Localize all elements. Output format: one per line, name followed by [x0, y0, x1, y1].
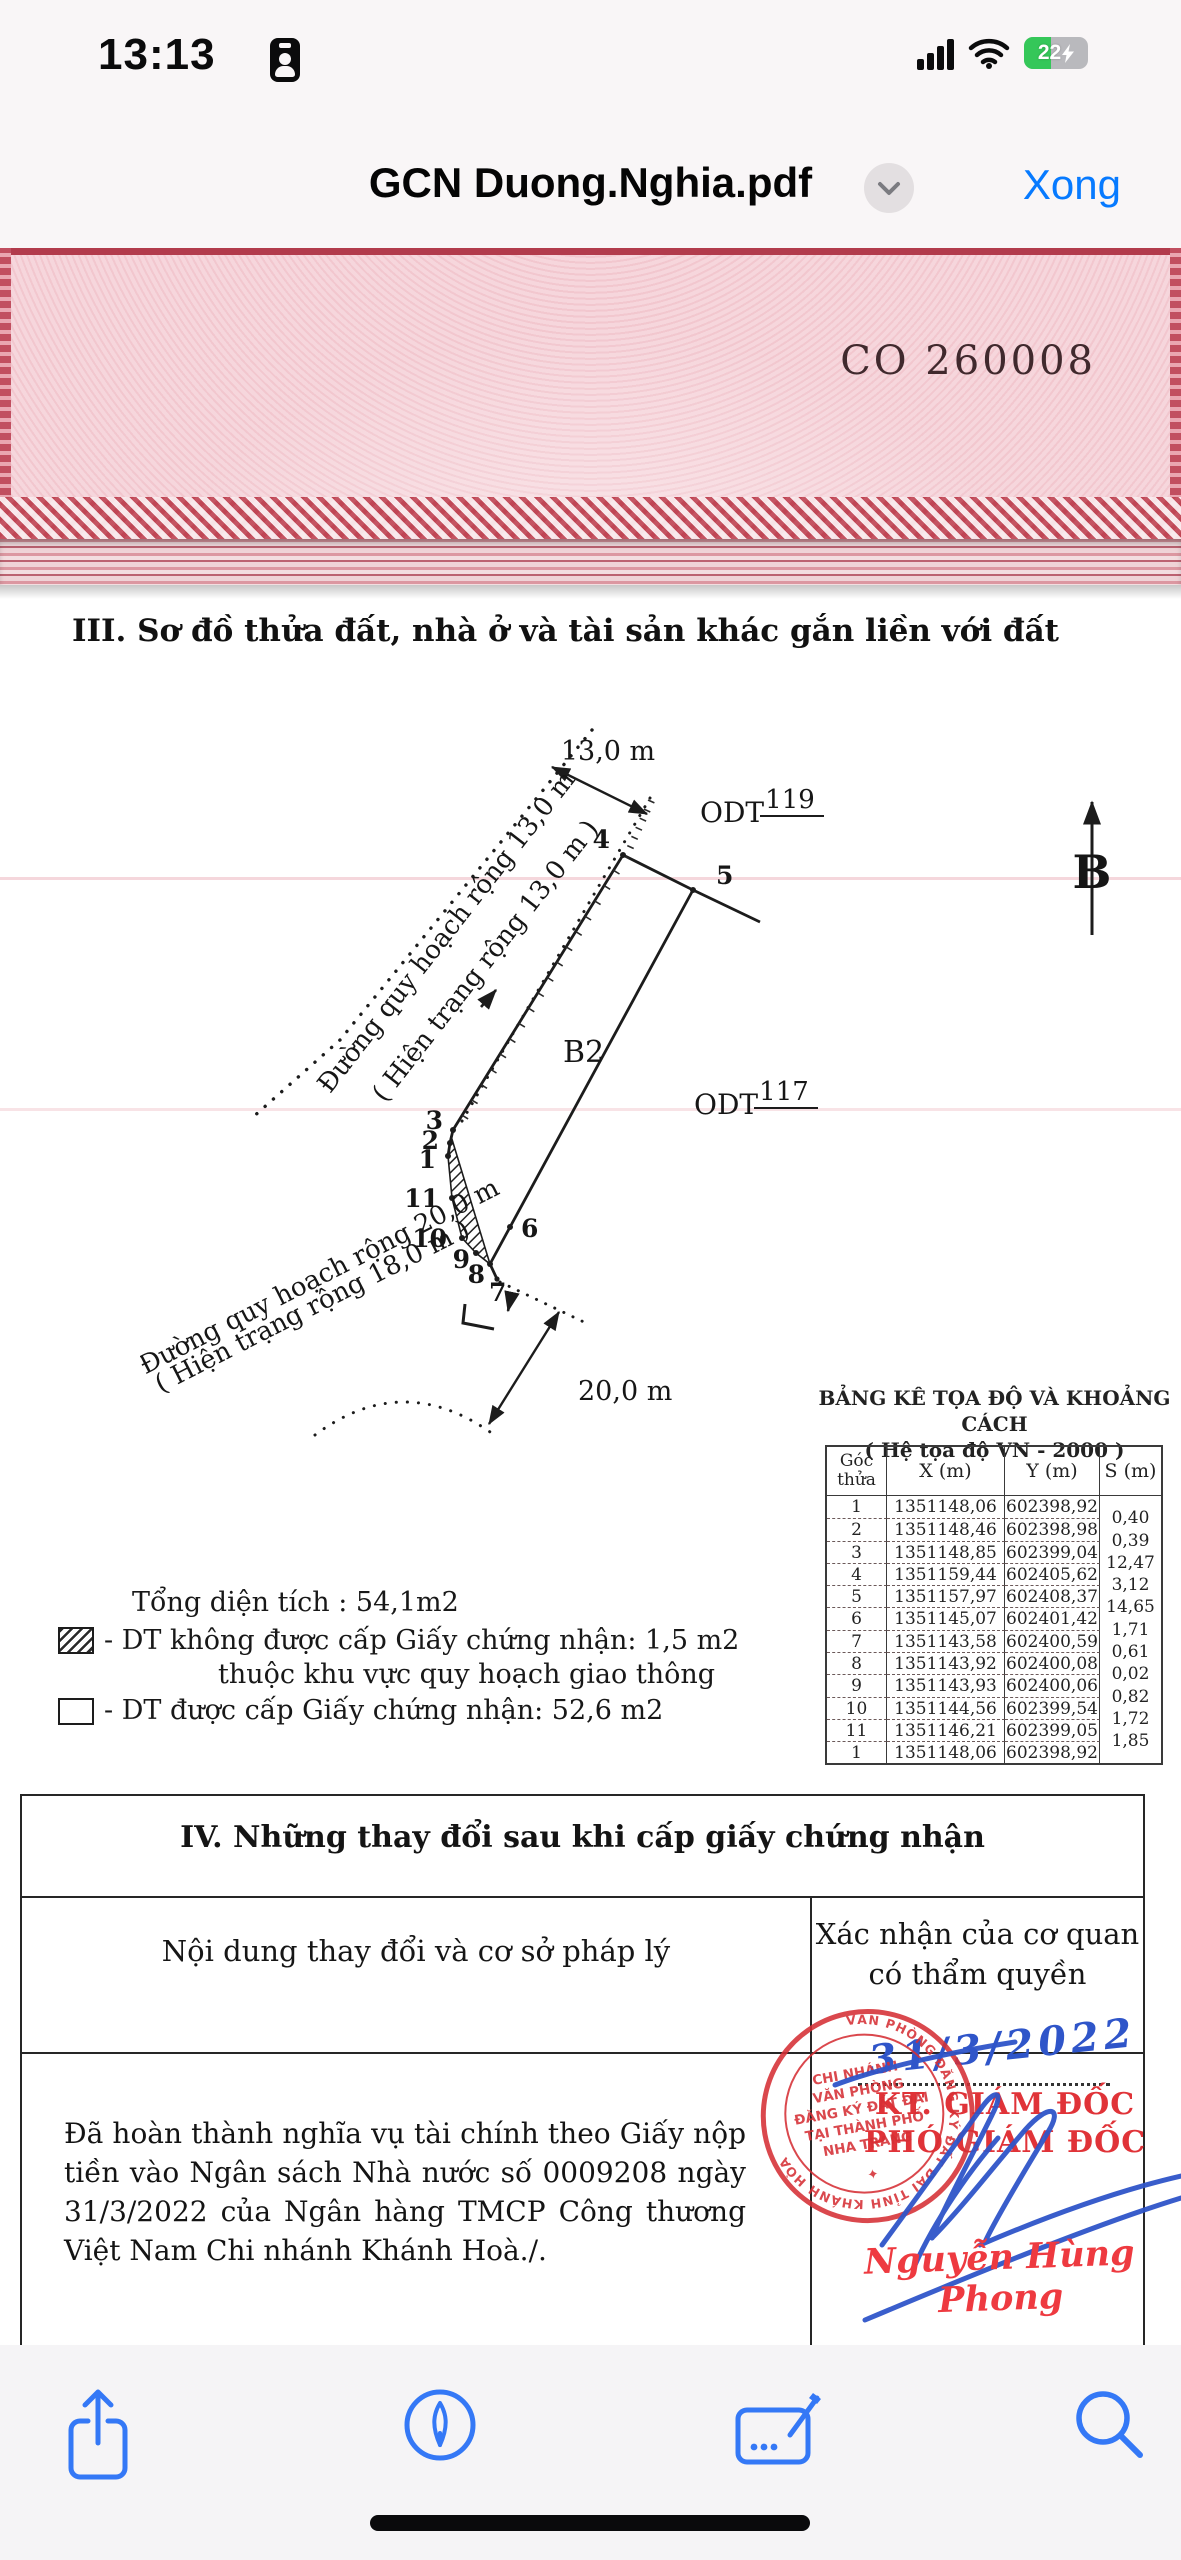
divider	[22, 1896, 1143, 1898]
odt117-label: ODT	[694, 1088, 758, 1121]
certificate-header: CO 260008	[0, 248, 1181, 585]
svg-text:6: 6	[521, 1214, 538, 1243]
battery-percent: 22	[1038, 41, 1061, 65]
search-button[interactable]	[1070, 2385, 1150, 2469]
legend-not-granted-2: thuộc khu vực quy hoạch giao thông	[218, 1659, 715, 1690]
dimension-line-20m	[489, 1312, 559, 1424]
financial-note: Đã hoàn thành nghĩa vụ tài chính theo Gi…	[64, 2114, 746, 2270]
odt117-number: 117	[759, 1077, 809, 1107]
dim-13m-label: 13,0 m	[561, 736, 655, 767]
title-menu-button[interactable]	[864, 163, 914, 213]
signer-name: Nguyễn Hùng Phong	[829, 2231, 1172, 2325]
search-icon	[1070, 2385, 1150, 2465]
tick-arrow-down	[508, 1292, 512, 1311]
pdf-page: III. Sơ đồ thửa đất, nhà ở và tài sản kh…	[0, 585, 1181, 2345]
north-label: B	[1073, 845, 1112, 899]
tick-arrow-up	[481, 990, 496, 1007]
dim-20m-label: 20,0 m	[578, 1376, 672, 1407]
svg-text:5: 5	[716, 861, 733, 890]
odt119-label: ODT	[700, 796, 764, 829]
chevron-down-icon	[864, 163, 914, 213]
share-button[interactable]	[60, 2385, 136, 2489]
road-edge-dotted	[500, 1282, 588, 1324]
screen: 13:13 22	[0, 0, 1181, 2560]
section4-col-left-header: Nội dung thay đổi và cơ sở pháp lý	[22, 1934, 810, 1968]
road-corner-mark	[463, 1304, 494, 1329]
coord-table: Góc thửa X (m) Y (m) S (m) 11351148,0660…	[825, 1445, 1163, 1765]
done-button[interactable]: Xong	[1023, 161, 1121, 209]
focus-id-badge-icon	[270, 38, 300, 82]
signature-box-icon	[730, 2385, 830, 2475]
certificate-fold-edge	[0, 539, 1181, 585]
title-bar: GCN Duong.Nghia.pdf Xong	[0, 125, 1181, 249]
coord-table-body: 11351148,06602398,9221351148,46602398,98…	[827, 1496, 1161, 1764]
road-curve-dotted	[315, 1402, 497, 1437]
markup-pen-icon	[400, 2385, 480, 2465]
clock: 13:13	[98, 30, 216, 80]
svg-text:8: 8	[468, 1260, 485, 1289]
battery-icon: 22	[1024, 37, 1081, 69]
share-icon	[60, 2385, 136, 2485]
certificate-top-border	[0, 248, 1181, 255]
certificate-serial: CO 260008	[840, 338, 1096, 384]
section4-heading: IV. Những thay đổi sau khi cấp giấy chứn…	[22, 1820, 1143, 1855]
hatched-swatch	[58, 1627, 94, 1654]
road13-label-1: Đường quy hoạch rộng 13,0 m	[312, 765, 582, 1098]
wifi-icon	[968, 37, 1010, 69]
coord-table-row: 11351148,06602398,921,85	[827, 1741, 1161, 1763]
home-indicator[interactable]	[370, 2515, 810, 2531]
certificate-right-border	[1170, 248, 1181, 539]
bottom-toolbar	[0, 2345, 1181, 2560]
certificate-left-border	[0, 248, 11, 539]
charging-bolt-icon	[1062, 44, 1074, 63]
markup-button[interactable]	[400, 2385, 480, 2469]
svg-text:7: 7	[489, 1278, 506, 1307]
svg-text:1: 1	[419, 1145, 436, 1174]
section3-heading: III. Sơ đồ thửa đất, nhà ở và tài sản kh…	[72, 613, 1059, 649]
odt119-number: 119	[765, 785, 815, 815]
zone-b2-label: B2	[563, 1035, 604, 1070]
cellular-signal-icon	[917, 36, 954, 70]
legend-granted: - DT được cấp Giấy chứng nhận: 52,6 m2	[104, 1695, 663, 1726]
document-title: GCN Duong.Nghia.pdf	[0, 159, 1181, 207]
signature-button[interactable]	[730, 2385, 830, 2479]
certificate-ornament-strip	[0, 497, 1181, 539]
empty-swatch	[58, 1698, 94, 1725]
legend-not-granted: - DT không được cấp Giấy chứng nhận: 1,5…	[104, 1625, 739, 1656]
status-bar: 13:13 22	[0, 0, 1181, 125]
road20-label-2: ( Hiện trạng rộng 18,0 m )	[150, 1214, 474, 1399]
section4-col-right-header: Xác nhận của cơ quan có thẩm quyền	[812, 1914, 1143, 1994]
coord-table-header: Góc thửa X (m) Y (m) S (m)	[827, 1447, 1161, 1496]
legend-total-area: Tổng diện tích : 54,1m2	[132, 1587, 459, 1618]
